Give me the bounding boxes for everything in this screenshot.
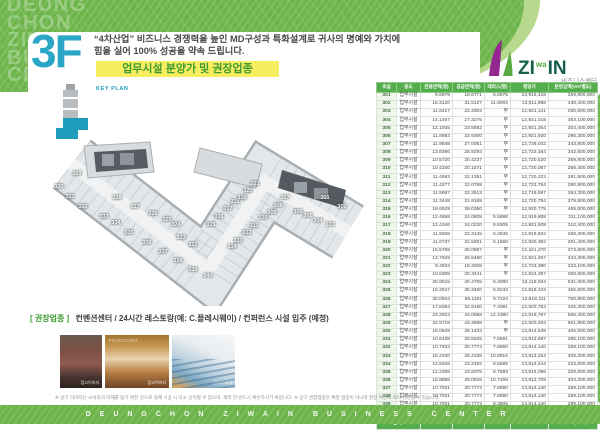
table-row: 319업무시설11.673722.55015.166012,920,362291… bbox=[377, 239, 598, 247]
unit-label: 316 bbox=[214, 214, 223, 220]
unit-label: 336 bbox=[142, 240, 151, 246]
table-cell: 무 bbox=[485, 329, 511, 337]
table-row: 308업무시설13.839626.9294무12,722,164342,600,… bbox=[377, 149, 598, 157]
table-row: 312업무시설11.427722.0768무12,723,754280,900,… bbox=[377, 182, 598, 190]
table-cell: 556,400,000 bbox=[549, 312, 598, 320]
unit-label: 310 bbox=[258, 215, 267, 221]
table-cell: 330 bbox=[377, 329, 397, 337]
table-cell: 11.5508 bbox=[421, 231, 453, 239]
table-cell: 335 bbox=[377, 369, 397, 377]
table-cell: 업무시설 bbox=[397, 239, 421, 247]
unit-label: 323 bbox=[176, 235, 185, 241]
floorplan: 3013023033043053063073083093103113123133… bbox=[50, 130, 382, 306]
table-cell: 12.2308 bbox=[421, 369, 453, 377]
table-cell: 10.4340 bbox=[421, 166, 453, 174]
table-cell: 336 bbox=[377, 377, 397, 385]
unit-label: 306 bbox=[293, 209, 302, 215]
table-cell: 40.4755 bbox=[453, 280, 485, 288]
unit-label: 312 bbox=[242, 230, 251, 236]
table-cell: 무 bbox=[485, 141, 511, 149]
table-cell: 12,722,164 bbox=[511, 149, 549, 157]
logo-wa: wa bbox=[536, 60, 547, 69]
table-row: 305업무시설12.194523.5582무12,921,354304,400,… bbox=[377, 125, 598, 133]
footer-band: DEUNGCHON ZIWAIN BUSINESS CENTER bbox=[0, 405, 600, 424]
table-cell: 9.6679 bbox=[421, 93, 453, 101]
table-cell: 업무시설 bbox=[397, 117, 421, 125]
photo-caption: 참고이미지 bbox=[214, 380, 232, 386]
table-cell: 업무시설 bbox=[397, 141, 421, 149]
table-cell: 29.4108 bbox=[453, 353, 485, 361]
table-cell: 12,921,354 bbox=[511, 125, 549, 133]
table-cell: 302 bbox=[377, 101, 397, 109]
table-cell: 29.0526 bbox=[453, 377, 485, 385]
unit-label: 308 bbox=[273, 203, 282, 209]
table-cell: 58.1191 bbox=[453, 296, 485, 304]
table-cell: 23.5582 bbox=[453, 125, 485, 133]
unit-label: 319 bbox=[237, 195, 246, 201]
unit-label: 326 bbox=[148, 211, 157, 217]
price-table: 호실용도전용면적(평)공급면적(평)테라스(평)평당가분양금액(VAT별도) 3… bbox=[376, 82, 598, 430]
table-cell: 18.6771 bbox=[453, 93, 485, 101]
table-row: 314업무시설11.344821.9169무12,720,794278,800,… bbox=[377, 198, 598, 206]
table-cell: 319 bbox=[377, 239, 397, 247]
table-cell: 10.6438 bbox=[421, 337, 453, 345]
table-cell: 9.7223 bbox=[485, 296, 511, 304]
table-cell: 업무시설 bbox=[397, 296, 421, 304]
table-cell: 12.4346 bbox=[421, 223, 453, 231]
photo-caption: 참고이미지 bbox=[148, 380, 166, 386]
table-row: 325업무시설18.294735.34005.923312,919,103456… bbox=[377, 288, 598, 296]
table-cell: 304 bbox=[377, 117, 397, 125]
table-cell: 18.6529 bbox=[421, 206, 453, 214]
unit-label: 311 bbox=[250, 223, 259, 229]
table-cell: 11.9848 bbox=[421, 141, 453, 149]
table-cell: 무 bbox=[485, 206, 511, 214]
unit-label: 305 bbox=[303, 213, 312, 219]
table-cell: 업무시설 bbox=[397, 329, 421, 337]
table-cell: 업무시설 bbox=[397, 263, 421, 271]
table-cell: 업무시설 bbox=[397, 231, 421, 239]
table-cell: 15.5769 bbox=[421, 247, 453, 255]
table-cell: 531,000,000 bbox=[549, 280, 598, 288]
unit-label: 314 bbox=[227, 244, 236, 250]
table-cell: 12,921,141 bbox=[511, 109, 549, 117]
unit-label: 339 bbox=[188, 267, 197, 273]
table-cell: 31.5127 bbox=[453, 101, 485, 109]
table-cell: 업무시설 bbox=[397, 255, 421, 263]
table-cell: 무 bbox=[485, 272, 511, 280]
table-cell: 22.0768 bbox=[453, 182, 485, 190]
table-cell: 20.1571 bbox=[453, 166, 485, 174]
recommended-business-text: 컨벤션센터 / 24시간 레스토랑(예: C.플레시웨이) / 컨퍼런스 시설 … bbox=[75, 314, 328, 323]
table-cell: 12.4380 bbox=[485, 312, 511, 320]
table-row: 303업무시설11.641722.4903무12,921,141290,600,… bbox=[377, 109, 598, 117]
table-cell: 9.4834 bbox=[421, 263, 453, 271]
table-cell: 12,720,087 bbox=[511, 166, 549, 174]
table-cell: 13,913,254 bbox=[511, 353, 549, 361]
table-cell: 22.9300 bbox=[453, 133, 485, 141]
table-cell: 465,600,000 bbox=[549, 206, 598, 214]
unit-label: 303 bbox=[325, 222, 334, 228]
table-cell: 333 bbox=[377, 353, 397, 361]
table-cell: 23.6075 bbox=[453, 369, 485, 377]
disclaimer-text: ※ 상기 이미지는 소비자의 이해를 돕기 위한 것으로 실제 시공 시 다소 … bbox=[55, 395, 580, 401]
table-cell: 12,919,103 bbox=[511, 288, 549, 296]
table-cell: 업무시설 bbox=[397, 174, 421, 182]
table-cell: 업무시설 bbox=[397, 190, 421, 198]
table-cell: 259,800,000 bbox=[549, 158, 598, 166]
floor-label: 3F bbox=[31, 24, 81, 78]
table-cell: 321 bbox=[377, 255, 397, 263]
table-cell: 320 bbox=[377, 247, 397, 255]
table-cell: 업무시설 bbox=[397, 312, 421, 320]
table-cell: 309 bbox=[377, 158, 397, 166]
logo-text: ZI wa IN bbox=[518, 60, 567, 78]
table-cell: 22.5501 bbox=[453, 239, 485, 247]
table-cell: 12,720,223 bbox=[511, 174, 549, 182]
table-cell: 10.8915 bbox=[485, 353, 511, 361]
table-cell: 313 bbox=[377, 190, 397, 198]
column-header: 용도 bbox=[397, 83, 421, 93]
table-cell: 311 bbox=[377, 174, 397, 182]
table-cell: 무 bbox=[485, 149, 511, 157]
table-cell: 561,900,000 bbox=[549, 320, 598, 328]
photo-foodcourt: FOODCOURT 참고이미지 bbox=[105, 335, 169, 388]
table-row: 309업무시설10.572020.4237무12,720,520259,800,… bbox=[377, 158, 598, 166]
column-header: 분양금액(VAT별도) bbox=[549, 83, 598, 93]
unit-label: 325 bbox=[162, 217, 171, 223]
table-row: 332업무시설10.793320.77747.685013,914,140289… bbox=[377, 345, 598, 353]
table-cell: 20.3441 bbox=[453, 272, 485, 280]
table-cell: 324 bbox=[377, 280, 397, 288]
table-cell: 11.6737 bbox=[421, 239, 453, 247]
slogan-line1: “4차산업” 비즈니스 경쟁력을 높인 MD구성과 특화설계로 귀사의 명예와 … bbox=[94, 34, 400, 46]
table-row: 301업무시설9.667918.67716.697513,915,418259,… bbox=[377, 93, 598, 101]
column-header: 공급면적(평) bbox=[453, 83, 485, 93]
table-cell: 13,911,898 bbox=[511, 101, 549, 109]
slogan: “4차산업” 비즈니스 경쟁력을 높인 MD구성과 특화설계로 귀사의 명예와 … bbox=[94, 34, 400, 58]
table-cell: 233,100,000 bbox=[549, 263, 598, 271]
table-cell: 업무시설 bbox=[397, 125, 421, 133]
table-cell: 314 bbox=[377, 198, 397, 206]
unit-label: 324 bbox=[171, 222, 180, 228]
table-row: 321업무시설13.792926.6460무12,921,267344,300,… bbox=[377, 255, 598, 263]
table-cell: 12,723,754 bbox=[511, 182, 549, 190]
unit-label: 328 bbox=[112, 195, 121, 201]
table-cell: 289,100,000 bbox=[549, 345, 598, 353]
table-cell: 23.2923 bbox=[421, 312, 453, 320]
table-cell: 343,800,000 bbox=[549, 141, 598, 149]
table-cell: 무 bbox=[485, 125, 511, 133]
table-cell: 무 bbox=[485, 198, 511, 206]
table-row: 322업무시설9.483418.3208무12,723,380233,100,0… bbox=[377, 263, 598, 271]
unit-label: 320 bbox=[243, 188, 252, 194]
column-header: 테라스(평) bbox=[485, 83, 511, 93]
table-cell: 311,100,000 bbox=[549, 215, 598, 223]
table-cell: 259,900,000 bbox=[549, 93, 598, 101]
table-cell: 35.3400 bbox=[453, 288, 485, 296]
table-cell: 30.0887 bbox=[453, 247, 485, 255]
unit-label: 309 bbox=[267, 210, 276, 216]
table-cell: 409,200,000 bbox=[549, 353, 598, 361]
unit-label: 340 bbox=[203, 273, 212, 279]
recommended-business-line: [ 권장업종 ] 컨벤션센터 / 24시간 레스토랑(예: C.플레시웨이) /… bbox=[30, 313, 329, 324]
table-cell: 무 bbox=[485, 247, 511, 255]
table-cell: 업무시설 bbox=[397, 345, 421, 353]
table-cell: 12,919,767 bbox=[511, 312, 549, 320]
table-cell: 10.5720 bbox=[421, 158, 453, 166]
unit-label: 304 bbox=[313, 218, 322, 224]
table-cell: 21.9169 bbox=[453, 198, 485, 206]
table-cell: 291,400,000 bbox=[549, 239, 598, 247]
table-cell: 26.6460 bbox=[453, 255, 485, 263]
unit-label: 331 bbox=[65, 194, 74, 200]
table-cell: 342,600,000 bbox=[549, 149, 598, 157]
table-cell: 310,400,000 bbox=[549, 223, 598, 231]
table-cell: 13.8396 bbox=[421, 149, 453, 157]
table-cell: 12,921,508 bbox=[511, 223, 549, 231]
table-cell: 14.1497 bbox=[421, 117, 453, 125]
table-cell: 13,912,709 bbox=[511, 377, 549, 385]
table-cell: 286,100,000 bbox=[549, 337, 598, 345]
price-table-header-row: 호실용도전용면적(평)공급면적(평)테라스(평)평당가분양금액(VAT별도) bbox=[377, 83, 598, 93]
table-cell: 307 bbox=[377, 141, 397, 149]
table-cell: 329 bbox=[377, 320, 397, 328]
column-header: 호실 bbox=[377, 83, 397, 93]
table-row: 310업무시설10.434020.1571무12,720,087256,400,… bbox=[377, 166, 598, 174]
table-cell: 무 bbox=[485, 158, 511, 166]
table-cell: 317 bbox=[377, 223, 397, 231]
table-cell: 310 bbox=[377, 166, 397, 174]
table-cell: 업무시설 bbox=[397, 109, 421, 117]
unit-label: 321 bbox=[250, 181, 259, 187]
unit-label: 333 bbox=[99, 214, 108, 220]
photo-caption: 참고이미지 bbox=[81, 380, 99, 386]
table-cell: 7.4081 bbox=[485, 304, 511, 312]
table-cell: 12,921,920 bbox=[511, 133, 549, 141]
table-cell: 업무시설 bbox=[397, 272, 421, 280]
table-cell: 업무시설 bbox=[397, 93, 421, 101]
table-cell: 12.8346 bbox=[421, 361, 453, 369]
table-cell: 업무시설 bbox=[397, 288, 421, 296]
keyplan-label: KEY PLAN bbox=[96, 86, 129, 92]
table-row: 304업무시설14.149727.3276무12,921,018353,100,… bbox=[377, 117, 598, 125]
table-cell: 425,300,000 bbox=[549, 304, 598, 312]
table-cell: 업무시설 bbox=[397, 206, 421, 214]
table-cell: 11.8002 bbox=[485, 101, 511, 109]
table-cell: 업무시설 bbox=[397, 377, 421, 385]
table-row: 326업무시설30.094458.11919.722312,918,311750… bbox=[377, 296, 598, 304]
table-cell: 6.6975 bbox=[485, 93, 511, 101]
unit-label: 315 bbox=[206, 222, 215, 228]
table-cell: 12,421,270 bbox=[511, 247, 549, 255]
slogan-line2: 힘을 실어 100% 성공을 약속 드립니다. bbox=[94, 46, 400, 58]
table-cell: 22.3513 bbox=[453, 190, 485, 198]
table-cell: 20.5625 bbox=[453, 337, 485, 345]
table-cell: 456,600,000 bbox=[549, 288, 598, 296]
table-cell: 405,500,000 bbox=[549, 329, 598, 337]
table-cell: 26.9294 bbox=[453, 149, 485, 157]
recommended-business-label: [ 권장업종 ] bbox=[30, 314, 69, 323]
table-cell: 404,200,000 bbox=[549, 377, 598, 385]
table-cell: 316 bbox=[377, 215, 397, 223]
table-cell: 11.3448 bbox=[421, 198, 453, 206]
table-cell: 22.1351 bbox=[453, 174, 485, 182]
ziwain-logo: ZI wa IN 비즈니스센터 bbox=[487, 30, 599, 78]
table-row: 335업무시설12.230823.60758.758313,915,096328… bbox=[377, 369, 598, 377]
table-cell: 무 bbox=[485, 109, 511, 117]
table-cell: 312 bbox=[377, 182, 397, 190]
table-row: 334업무시설12.834623.24928.558513,914,444323… bbox=[377, 361, 598, 369]
table-cell: 10.5308 bbox=[421, 272, 453, 280]
table-cell: 20.7774 bbox=[453, 345, 485, 353]
page-title: 업무시설 분양가 및 권장업종 bbox=[96, 61, 279, 77]
table-cell: 256,400,000 bbox=[549, 166, 598, 174]
table-cell: 24.0220 bbox=[453, 223, 485, 231]
table-cell: 업무시설 bbox=[397, 215, 421, 223]
table-cell: 322 bbox=[377, 263, 397, 271]
table-cell: 업무시설 bbox=[397, 320, 421, 328]
table-cell: 15.8886 bbox=[421, 377, 453, 385]
table-cell: 18.2947 bbox=[421, 288, 453, 296]
table-cell: 325 bbox=[377, 288, 397, 296]
table-cell: 업무시설 bbox=[397, 198, 421, 206]
table-cell: 무 bbox=[485, 117, 511, 125]
table-cell: 13,913,687 bbox=[511, 337, 549, 345]
table-cell: 13,914,140 bbox=[511, 345, 549, 353]
table-cell: 7.6850 bbox=[485, 386, 511, 394]
table-row: 311업무시설11.459322.1351무12,720,223281,500,… bbox=[377, 174, 598, 182]
price-table-container: 호실용도전용면적(평)공급면적(평)테라스(평)평당가분양금액(VAT별도) 3… bbox=[376, 82, 597, 430]
table-cell: 22.4903 bbox=[453, 109, 485, 117]
table-cell: 17.8384 bbox=[421, 304, 453, 312]
table-row: 313업무시설11.569722.3513무12,719,597284,300,… bbox=[377, 190, 598, 198]
unit-label: 334 bbox=[111, 220, 120, 226]
table-cell: 12.4658 bbox=[421, 215, 453, 223]
table-cell: 업무시설 bbox=[397, 149, 421, 157]
table-cell: 12,720,794 bbox=[511, 198, 549, 206]
table-cell: 315 bbox=[377, 206, 397, 214]
table-cell: 16.3120 bbox=[421, 101, 453, 109]
table-cell: 12,919,808 bbox=[511, 215, 549, 223]
unit-label: 335 bbox=[124, 230, 133, 236]
table-cell: 323,500,000 bbox=[549, 361, 598, 369]
table-cell: 12,921,267 bbox=[511, 255, 549, 263]
table-cell: 328,500,000 bbox=[549, 369, 598, 377]
table-cell: 303 bbox=[377, 109, 397, 117]
table-cell: 438,400,000 bbox=[549, 101, 598, 109]
table-cell: 무 bbox=[485, 174, 511, 182]
table-cell: 327 bbox=[377, 304, 397, 312]
unit-label: 302 bbox=[337, 204, 346, 210]
table-cell: 12,729,042 bbox=[511, 141, 549, 149]
table-cell: 280,900,000 bbox=[549, 182, 598, 190]
table-cell: 24.0808 bbox=[453, 215, 485, 223]
table-cell: 업무시설 bbox=[397, 247, 421, 255]
table-cell: 11.4277 bbox=[421, 182, 453, 190]
table-row: 330업무시설15.084929.1433무13,914,549405,500,… bbox=[377, 329, 598, 337]
column-header: 평당가 bbox=[511, 83, 549, 93]
table-cell: 12,719,597 bbox=[511, 190, 549, 198]
table-cell: 27.3276 bbox=[453, 117, 485, 125]
unit-label: 332 bbox=[78, 204, 87, 210]
table-cell: 373,800,000 bbox=[549, 247, 598, 255]
table-cell: 11.6417 bbox=[421, 109, 453, 117]
table-cell: 30.0944 bbox=[421, 296, 453, 304]
table-cell: 13,915,418 bbox=[511, 93, 549, 101]
table-row: 302업무시설16.312031.512711.800213,911,89843… bbox=[377, 101, 598, 109]
table-cell: 업무시설 bbox=[397, 304, 421, 312]
table-cell: 278,800,000 bbox=[549, 198, 598, 206]
table-cell: 10.7458 bbox=[485, 377, 511, 385]
table-cell: 18.3208 bbox=[453, 263, 485, 271]
foodcourt-sign: FOODCOURT bbox=[109, 338, 138, 343]
table-cell: 12,723,380 bbox=[511, 263, 549, 271]
table-cell: 업무시설 bbox=[397, 166, 421, 174]
table-cell: 290,600,000 bbox=[549, 109, 598, 117]
table-cell: 업무시설 bbox=[397, 280, 421, 288]
logo-mark-icon bbox=[487, 38, 514, 78]
table-cell: 344,300,000 bbox=[549, 255, 598, 263]
table-cell: 13.7929 bbox=[421, 255, 453, 263]
reference-photos: 참고이미지 FOODCOURT 참고이미지 참고이미지 bbox=[60, 335, 235, 388]
table-cell: 업무시설 bbox=[397, 369, 421, 377]
unit-label: 338 bbox=[173, 258, 182, 264]
table-cell: 11.4593 bbox=[421, 174, 453, 182]
table-row: 328업무시설23.292343.065812.438012,919,76755… bbox=[377, 312, 598, 320]
table-row: 318업무시설11.550822.31455.263512,919,822288… bbox=[377, 231, 598, 239]
table-cell: 22.3145 bbox=[453, 231, 485, 239]
table-cell: 12,920,263 bbox=[511, 320, 549, 328]
unit-label: 317 bbox=[223, 206, 232, 212]
table-cell: 무 bbox=[485, 190, 511, 198]
table-cell: 5.1660 bbox=[485, 239, 511, 247]
table-cell: 업무시설 bbox=[397, 158, 421, 166]
table-cell: 10.7933 bbox=[421, 345, 453, 353]
table-cell: 12,918,311 bbox=[511, 296, 549, 304]
table-row: 306업무시설11.869322.9300무12,921,920296,300,… bbox=[377, 133, 598, 141]
table-cell: 323 bbox=[377, 272, 397, 280]
table-cell: 353,100,000 bbox=[549, 117, 598, 125]
table-cell: 288,300,000 bbox=[549, 231, 598, 239]
table-row: 316업무시설12.465824.08085.588812,919,808311… bbox=[377, 215, 598, 223]
table-cell: 23.2492 bbox=[453, 361, 485, 369]
table-cell: 12,824,397 bbox=[511, 272, 549, 280]
table-cell: 무 bbox=[485, 320, 511, 328]
table-cell: 12.1945 bbox=[421, 125, 453, 133]
table-cell: 281,500,000 bbox=[549, 174, 598, 182]
table-cell: 무 bbox=[485, 182, 511, 190]
table-cell: 업무시설 bbox=[397, 353, 421, 361]
table-cell: 6.4090 bbox=[485, 280, 511, 288]
table-cell: 7.5591 bbox=[485, 337, 511, 345]
photo-seminar: 참고이미지 bbox=[60, 335, 102, 388]
table-cell: 11.8693 bbox=[421, 133, 453, 141]
table-cell: 12,920,753 bbox=[511, 304, 549, 312]
table-cell: 5.2635 bbox=[485, 231, 511, 239]
table-cell: 12,921,018 bbox=[511, 117, 549, 125]
table-cell: 43.4898 bbox=[453, 320, 485, 328]
table-cell: 15.2340 bbox=[421, 353, 453, 361]
table-cell: 13,119,034 bbox=[511, 280, 549, 288]
unit-label: 307 bbox=[280, 195, 289, 201]
table-cell: 7.6850 bbox=[485, 345, 511, 353]
column-header: 전용면적(평) bbox=[421, 83, 453, 93]
unit-label: 327 bbox=[130, 204, 139, 210]
table-cell: 업무시설 bbox=[397, 133, 421, 141]
table-cell: 12,920,362 bbox=[511, 239, 549, 247]
table-cell: 29.1433 bbox=[453, 329, 485, 337]
